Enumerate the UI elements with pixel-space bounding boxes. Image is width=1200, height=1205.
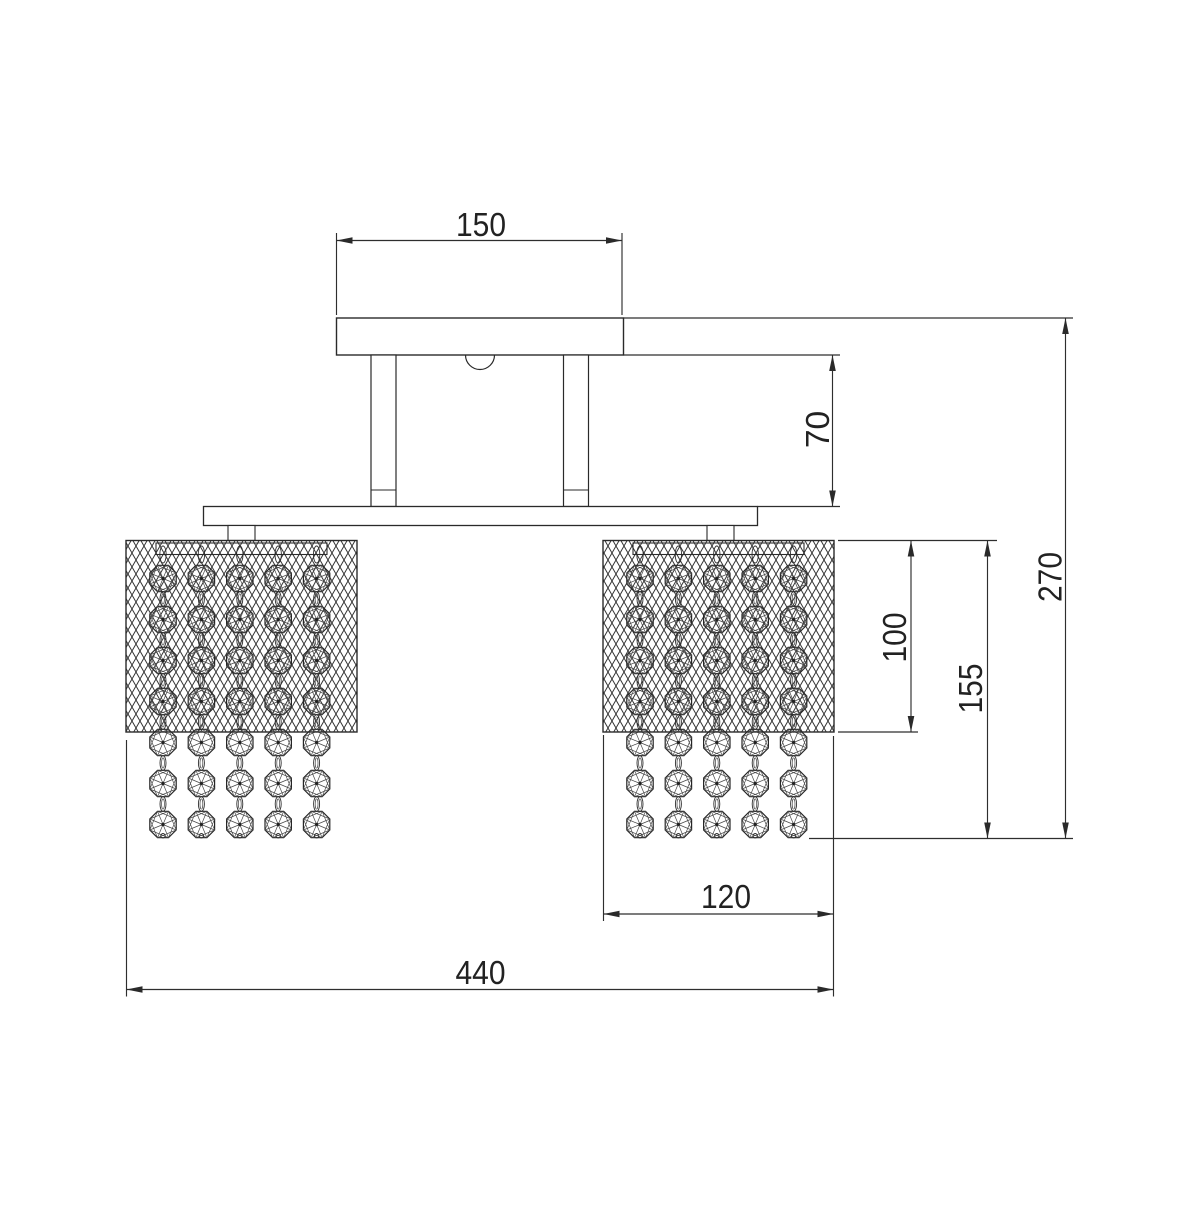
svg-text:155: 155: [953, 664, 990, 714]
svg-text:120: 120: [701, 879, 751, 916]
svg-text:440: 440: [456, 955, 506, 992]
svg-text:270: 270: [1033, 552, 1070, 602]
svg-text:100: 100: [877, 613, 914, 663]
svg-text:150: 150: [456, 207, 506, 244]
svg-text:70: 70: [800, 411, 837, 448]
